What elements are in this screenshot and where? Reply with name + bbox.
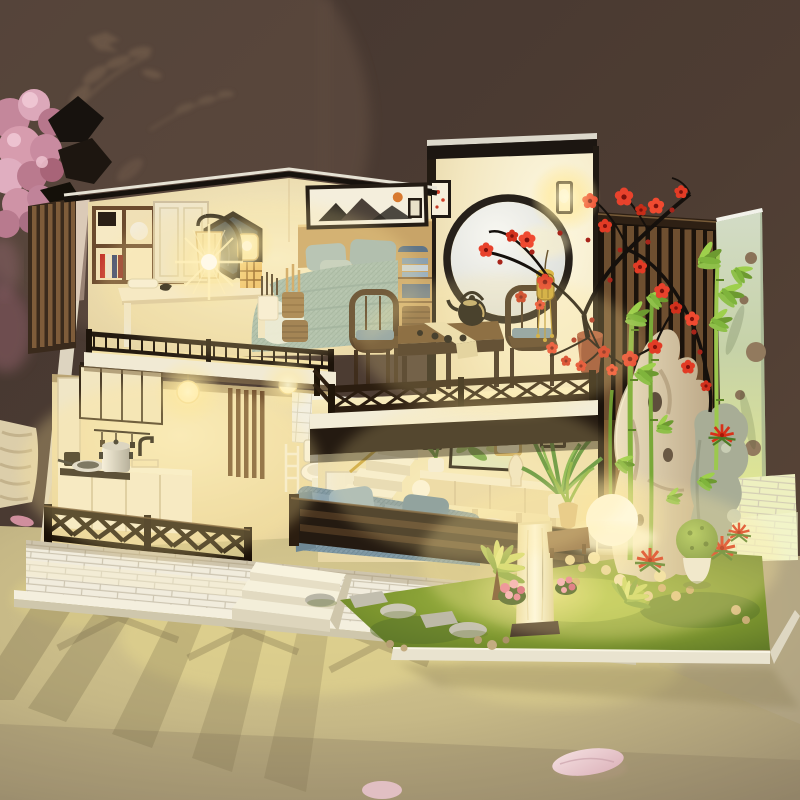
picture-lamp	[429, 180, 451, 218]
curtain-fold	[316, 0, 332, 200]
front-steps	[232, 562, 352, 632]
scene-canvas	[0, 0, 800, 800]
miniature-dollhouse-photo	[0, 0, 800, 800]
pink-petal-small	[362, 781, 402, 799]
